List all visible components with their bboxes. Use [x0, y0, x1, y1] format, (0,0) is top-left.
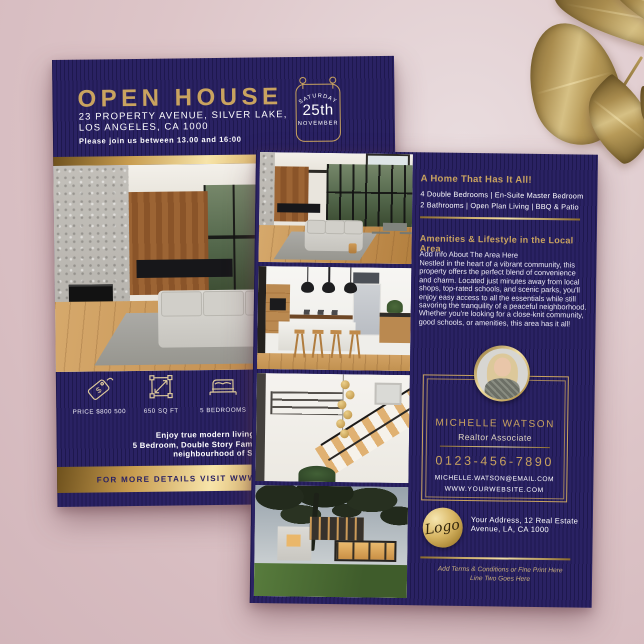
fine-print: Add Terms & Conditions or Fine Print Her… — [415, 564, 585, 584]
date-badge-date: 25th — [297, 101, 340, 119]
pendant-light — [329, 267, 330, 282]
agent-face — [493, 357, 510, 376]
feature-bedrooms-label: 5 BEDROOMS — [192, 407, 254, 415]
feature-area: 650 SQ FT — [130, 372, 193, 415]
staircase-photo — [255, 373, 409, 483]
pin-icon — [329, 77, 336, 84]
features-line1: 4 Double Bedrooms | En-Suite Master Bedr… — [420, 189, 590, 200]
gold-divider — [440, 446, 550, 449]
house — [310, 517, 364, 541]
pendant-light — [307, 267, 308, 282]
exterior-photo — [254, 485, 409, 598]
agent-name: MICHELLE WATSON — [423, 417, 567, 430]
gold-divider — [420, 556, 570, 560]
open-house-flyer-front: A Home That Has It All! 4 Double Bedroom… — [250, 150, 598, 608]
amenities-body: Nestled in the heart of a vibrant commun… — [419, 259, 590, 329]
feature-bedrooms: 5 BEDROOMS — [192, 372, 255, 415]
agent-title: Realtor Associate — [423, 431, 567, 443]
svg-text:$: $ — [94, 385, 104, 395]
price-tag-icon: $ — [83, 373, 115, 403]
pin-icon — [299, 77, 306, 84]
kitchen-photo — [257, 266, 411, 371]
pendant-light — [350, 267, 351, 282]
date-badge-month: NOVEMBER — [297, 120, 340, 127]
company-logo: Logo — [422, 507, 463, 548]
floor-area-icon — [145, 372, 177, 402]
agent-phone: 0123-456-7890 — [423, 453, 567, 469]
feature-price-label: PRICE $800 500 — [68, 408, 130, 416]
gold-divider — [420, 216, 580, 220]
property-address: 23 PROPERTY AVENUE, SILVER LAKE, LOS ANG… — [79, 109, 288, 134]
company-address: Your Address, 12 Real Estate Avenue, LA,… — [471, 515, 579, 535]
features-line2: 2 Bathrooms | Open Plan Living | BBQ & P… — [420, 200, 590, 211]
open-house-hours: Please join us between 13.00 and 16:00 — [79, 135, 242, 146]
feature-area-label: 650 SQ FT — [130, 407, 192, 415]
agent-top — [484, 378, 519, 400]
company-logo-text: Logo — [424, 517, 461, 538]
lawn — [254, 563, 407, 598]
living-room-photo-small — [258, 152, 413, 264]
product-image: OPEN HOUSE 23 PROPERTY AVENUE, SILVER LA… — [0, 0, 644, 644]
agent-website: WWW.YOURWEBSITE.COM — [422, 485, 566, 494]
feature-price: $ PRICE $800 500 — [68, 373, 131, 416]
property-address-line2: LOS ANGELES, CA 1000 — [79, 120, 288, 134]
bed-icon — [206, 372, 240, 402]
wood-wall — [125, 191, 208, 295]
feature-row: $ PRICE $800 500 650 SQ FT — [68, 372, 254, 416]
date-badge: SATURDAY 25th NOVEMBER — [295, 83, 341, 142]
headline: A Home That Has It All! — [421, 173, 591, 186]
agent-email: MICHELLE.WATSON@EMAIL.COM — [422, 474, 566, 483]
